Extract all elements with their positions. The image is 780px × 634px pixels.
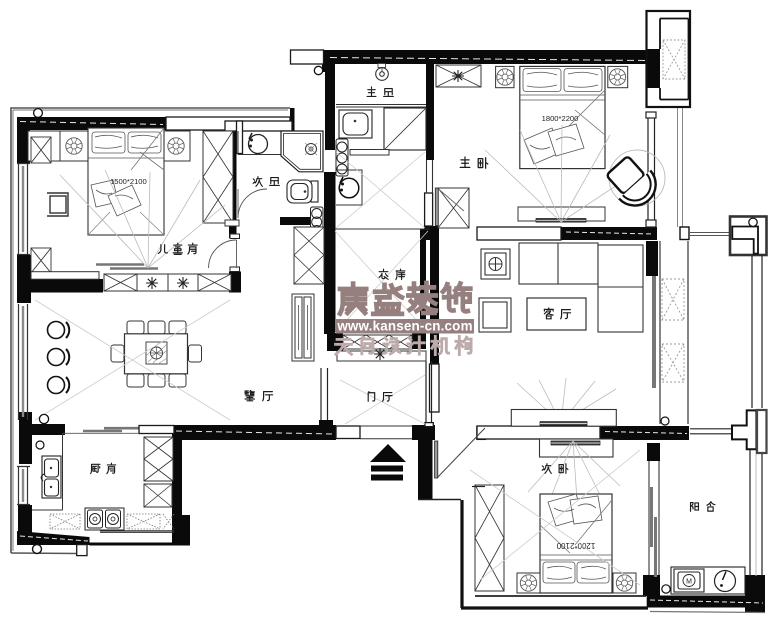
- svg-text:M: M: [686, 579, 692, 586]
- svg-text:1200*2100: 1200*2100: [556, 541, 595, 550]
- svg-text:1800*2200: 1800*2200: [542, 114, 579, 123]
- svg-text:1500*2100: 1500*2100: [110, 177, 147, 186]
- svg-text:www.kansen-cn.com: www.kansen-cn.com: [336, 319, 472, 334]
